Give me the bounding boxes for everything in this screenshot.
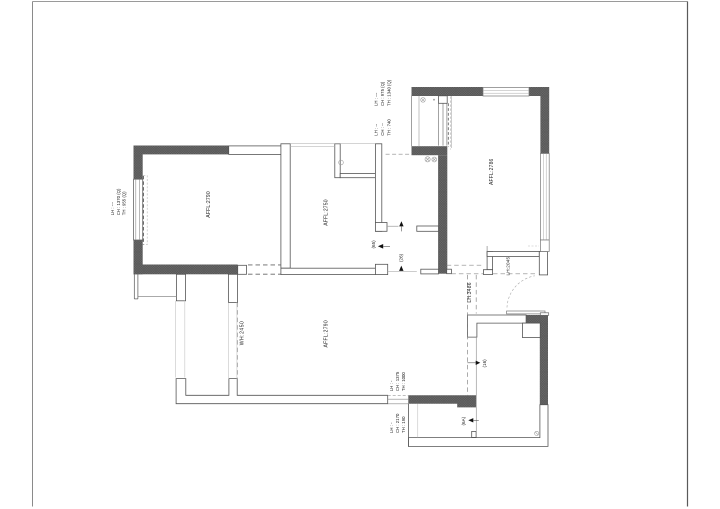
svg-text:TH : 955 (Q): TH : 955 (Q) bbox=[122, 191, 127, 215]
svg-text:LH:3486: LH:3486 bbox=[467, 282, 473, 302]
svg-text:CH : 1375: CH : 1375 bbox=[395, 371, 400, 391]
svg-text:CH : --: CH : -- bbox=[380, 122, 385, 135]
svg-text:(6A): (6A) bbox=[461, 416, 466, 425]
svg-text:LH : -: LH : - bbox=[389, 380, 394, 391]
svg-text:WH:2450: WH:2450 bbox=[239, 321, 245, 346]
svg-text:TH : 1340 (Q): TH : 1340 (Q) bbox=[386, 79, 391, 106]
svg-text:CH : 1370 (Q): CH : 1370 (Q) bbox=[116, 188, 121, 215]
svg-text:TH : 740: TH : 740 bbox=[386, 119, 391, 136]
svg-text:TH : 190: TH : 190 bbox=[401, 416, 406, 433]
svg-text:AFFL:2786: AFFL:2786 bbox=[489, 158, 495, 185]
svg-text:AFFL:2790: AFFL:2790 bbox=[206, 191, 212, 218]
svg-text:TH : 1000: TH : 1000 bbox=[401, 372, 406, 391]
svg-text:(65): (65) bbox=[371, 240, 376, 249]
svg-text:LH : --: LH : -- bbox=[373, 123, 378, 136]
svg-text:LH : ---: LH : --- bbox=[373, 92, 378, 106]
svg-text:AFFL:2790: AFFL:2790 bbox=[323, 320, 329, 347]
svg-text:CH : 975 (Q): CH : 975 (Q) bbox=[380, 81, 385, 106]
svg-text:LH : -: LH : - bbox=[389, 422, 394, 433]
svg-text:(16): (16) bbox=[482, 359, 487, 368]
svg-text:(26): (26) bbox=[398, 253, 403, 262]
svg-text:AFFL:2750: AFFL:2750 bbox=[323, 199, 329, 226]
svg-text:LH : ---: LH : --- bbox=[110, 201, 115, 215]
svg-text:LH:2045: LH:2045 bbox=[505, 256, 510, 275]
svg-text:CH : 2170: CH : 2170 bbox=[395, 413, 400, 433]
